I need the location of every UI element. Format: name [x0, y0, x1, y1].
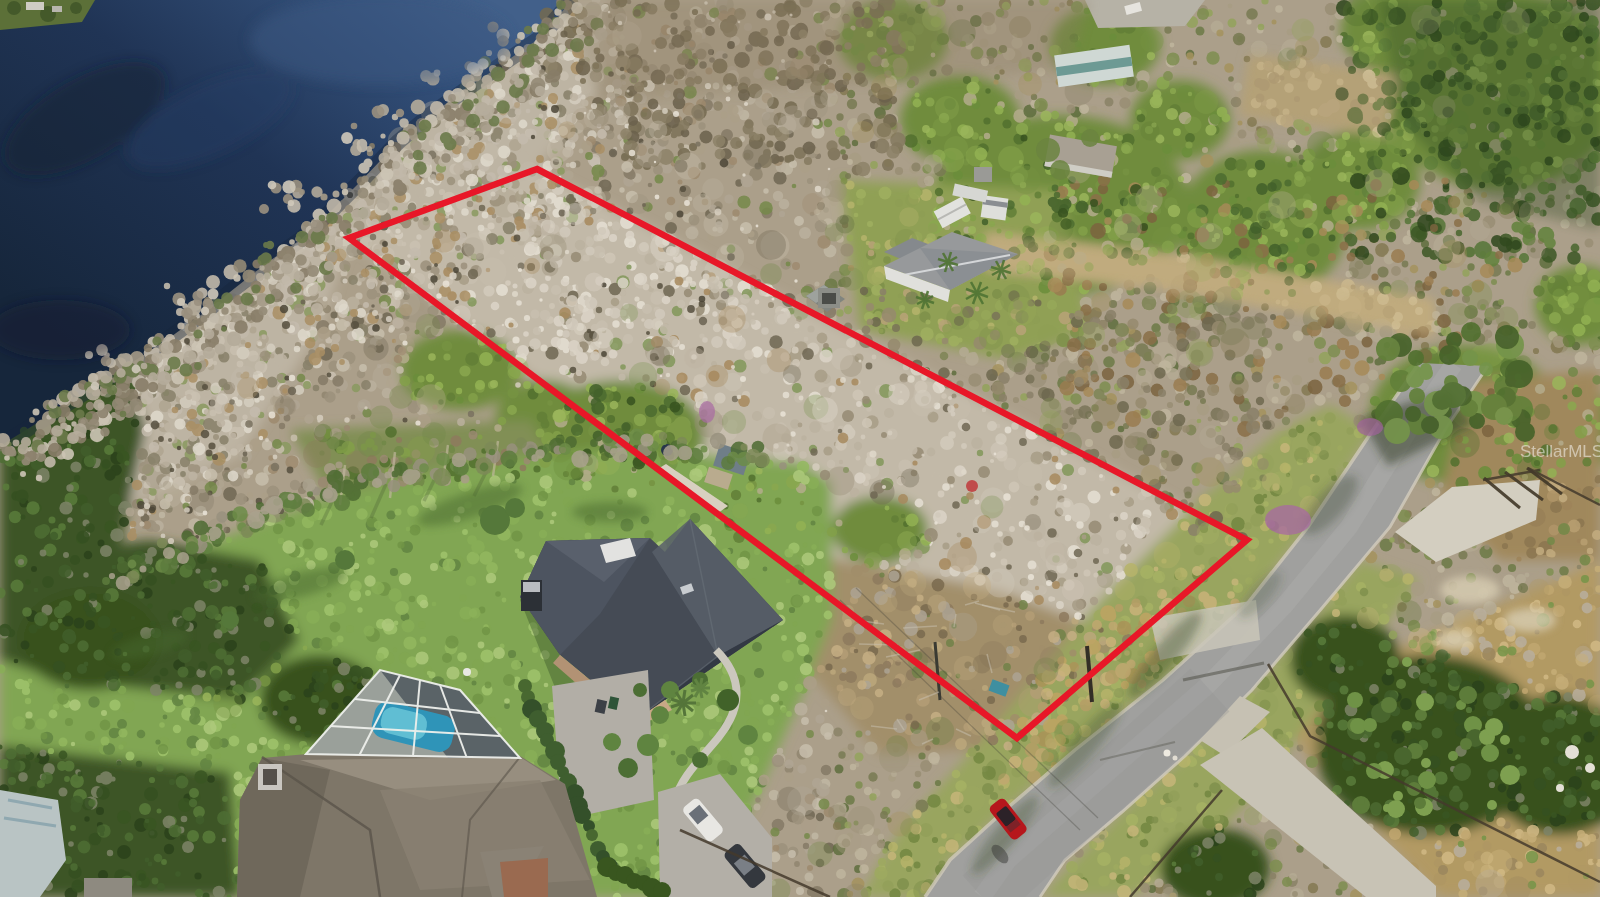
svg-text:StellarMLS: StellarMLS: [1520, 442, 1600, 461]
